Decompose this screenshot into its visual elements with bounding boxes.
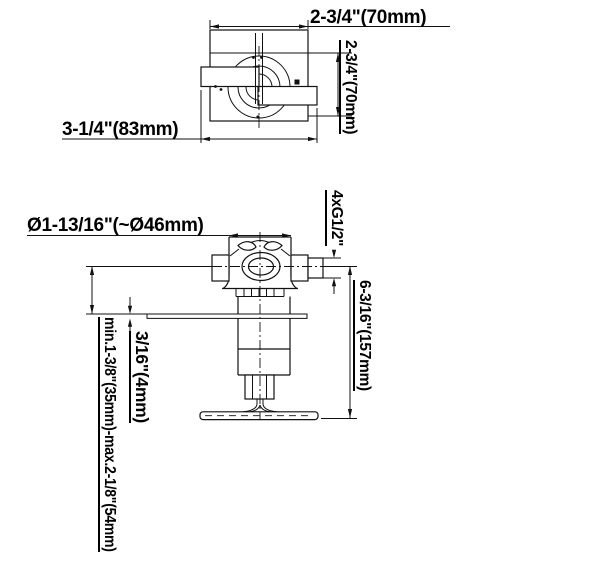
dim-label-mounting-depth-range: min.1-3/8"(35mm)-max.2-1/8"(54mm) — [98, 317, 117, 552]
dim-label-plate-thickness: 3/16"(4mm) — [130, 331, 151, 423]
left-port — [212, 255, 229, 281]
right-wing — [264, 242, 282, 251]
body-column — [238, 297, 290, 376]
line-drawing — [0, 0, 600, 565]
right-handle-plan — [258, 87, 317, 106]
right-port-stub — [308, 258, 323, 278]
dim-label-valve-diameter: Ø1-13/16"(~Ø46mm) — [27, 216, 204, 235]
left-wing — [238, 242, 256, 251]
wall-plate — [147, 314, 307, 318]
dim-label-top-width: 2-3/4"(70mm) — [310, 8, 426, 27]
connection-size-dimension — [323, 250, 341, 294]
left-handle-plan — [201, 67, 259, 87]
dim-label-right-height: 2-3/4"(70mm) — [340, 40, 359, 134]
plate-thickness-dimension — [128, 297, 132, 333]
technical-drawing-canvas: 2-3/4"(70mm) 2-3/4"(70mm) 3-1/4"(83mm) Ø… — [0, 0, 600, 565]
total-height-dimension — [321, 266, 357, 419]
front-view-drawing — [27, 232, 357, 420]
right-port — [291, 255, 308, 281]
dim-label-total-height: 6-3/16"(157mm) — [354, 280, 373, 391]
mounting-depth-dimension — [86, 266, 212, 314]
connection-nut — [245, 375, 274, 399]
dim-label-connections: 4xG1/2" — [326, 190, 345, 246]
dim-label-bottom-width: 3-1/4"(83mm) — [62, 120, 178, 139]
